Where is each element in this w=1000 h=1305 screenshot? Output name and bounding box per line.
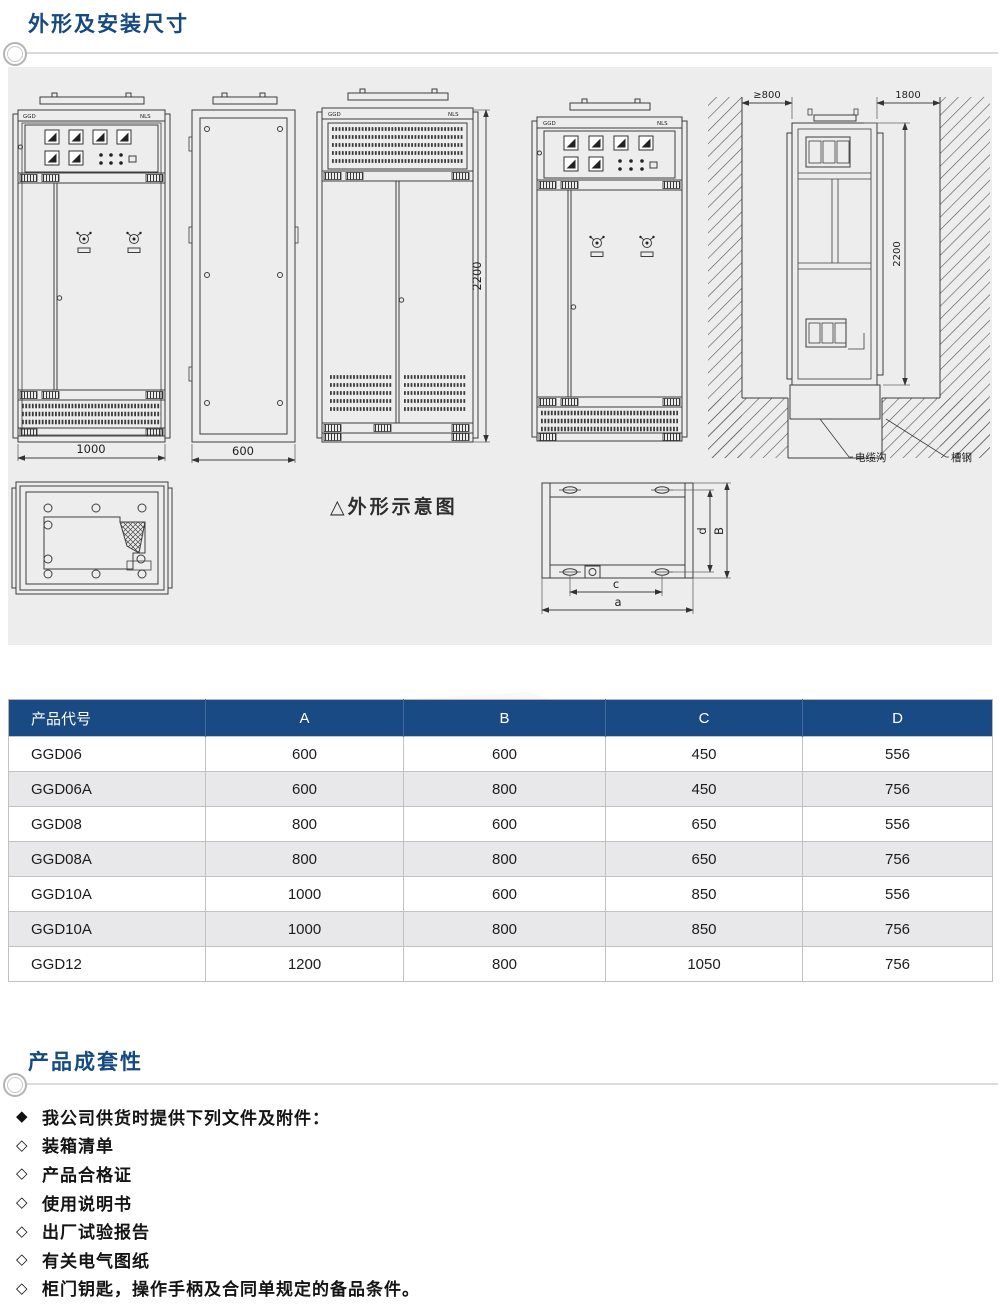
table-row: GGD06A 600 800 450 756 — [9, 772, 993, 807]
table-row: GGD08A 800 800 650 756 — [9, 842, 993, 877]
cell-D: 756 — [803, 772, 993, 807]
cell-B: 800 — [404, 772, 606, 807]
cabinet-label-right: NLS — [657, 121, 668, 127]
cell-C: 850 — [606, 877, 803, 912]
cell-C: 450 — [606, 737, 803, 772]
list-intro-text: 我公司供货时提供下列文件及附件： — [42, 1104, 330, 1129]
section-divider — [14, 52, 998, 54]
cabinet-label-left: GGD — [328, 112, 341, 118]
cell-C: 650 — [606, 807, 803, 842]
drawing-top-view — [12, 482, 172, 594]
cell-product-code: GGD06 — [9, 737, 206, 772]
section-title-completeness: 产品成套性 — [28, 1046, 143, 1076]
col-header-product-code: 产品代号 — [9, 700, 206, 737]
col-header-A: A — [206, 700, 404, 737]
cell-C: 850 — [606, 912, 803, 947]
drawing-installation: ≥800 1800 2200 电缆沟 槽钢 — [708, 90, 990, 464]
hollow-diamond-icon: ◇ — [16, 1136, 42, 1154]
cable-trench-label: 电缆沟 — [855, 451, 887, 464]
cell-A: 800 — [206, 807, 404, 842]
list-item: ◇ 产品合格证 — [16, 1159, 976, 1188]
hollow-diamond-icon: ◇ — [16, 1193, 42, 1211]
table-row: GGD06 600 600 450 556 — [9, 737, 993, 772]
cell-product-code: GGD08A — [9, 842, 206, 877]
filled-diamond-icon: ◆ — [16, 1107, 42, 1125]
dim-B: B — [712, 527, 726, 535]
dim-width-600: 600 — [232, 444, 254, 458]
cell-B: 600 — [404, 807, 606, 842]
drawing-side-view: 600 — [189, 93, 298, 463]
dim-d: d — [695, 527, 709, 534]
cell-A: 800 — [206, 842, 404, 877]
vent-grille — [541, 413, 678, 429]
outline-caption: △外形示意图 — [330, 492, 458, 519]
cell-product-code: GGD10A — [9, 877, 206, 912]
drawing-front-view: GGD NLS — [13, 93, 170, 461]
channel-steel-label: 槽钢 — [951, 451, 972, 464]
hollow-diamond-icon: ◇ — [16, 1250, 42, 1268]
cell-D: 756 — [803, 842, 993, 877]
section-title-dimensions: 外形及安装尺寸 — [28, 8, 189, 38]
dim-c: c — [613, 577, 619, 591]
cell-B: 600 — [404, 877, 606, 912]
cell-B: 800 — [404, 842, 606, 877]
completeness-list: ◆ 我公司供货时提供下列文件及附件： ◇ 装箱清单 ◇ 产品合格证 ◇ 使用说明… — [16, 1102, 976, 1302]
cell-B: 600 — [404, 737, 606, 772]
door-vent-grilles — [330, 377, 466, 409]
list-item: ◇ 装箱清单 — [16, 1131, 976, 1160]
dim-left-clearance: ≥800 — [753, 90, 780, 101]
ring-icon — [3, 42, 27, 66]
list-item-text: 有关电气图纸 — [42, 1247, 150, 1272]
cell-D: 756 — [803, 947, 993, 982]
table-header-row: 产品代号 A B C D — [9, 700, 993, 737]
indicator-lamps — [618, 159, 657, 171]
col-header-D: D — [803, 700, 993, 737]
cell-C: 650 — [606, 842, 803, 877]
indicator-lamps — [99, 153, 136, 165]
list-item: ◇ 出厂试验报告 — [16, 1216, 976, 1245]
dim-width-1000: 1000 — [76, 442, 105, 456]
cell-A: 1000 — [206, 912, 404, 947]
dim-a: a — [614, 595, 621, 609]
cell-C: 450 — [606, 772, 803, 807]
list-item: ◇ 柜门钥匙，操作手柄及合同单规定的备品条件。 — [16, 1274, 976, 1303]
cell-A: 600 — [206, 737, 404, 772]
panel-screws — [205, 127, 283, 406]
cabinet-label-right: NLS — [140, 114, 151, 120]
list-item-text: 柜门钥匙，操作手柄及合同单规定的备品条件。 — [42, 1275, 420, 1300]
list-intro: ◆ 我公司供货时提供下列文件及附件： — [16, 1102, 976, 1131]
cell-D: 556 — [803, 737, 993, 772]
cabinet-label-left: GGD — [23, 114, 36, 120]
cell-A: 1200 — [206, 947, 404, 982]
cell-product-code: GGD12 — [9, 947, 206, 982]
cell-B: 800 — [404, 912, 606, 947]
cell-A: 1000 — [206, 877, 404, 912]
col-header-C: C — [606, 700, 803, 737]
list-item-text: 使用说明书 — [42, 1190, 132, 1215]
ring-icon — [3, 1073, 27, 1097]
drawing-front-view-2: GGD NLS — [532, 99, 687, 441]
hollow-diamond-icon: ◇ — [16, 1164, 42, 1182]
cabinet-label-left: GGD — [543, 121, 556, 127]
dim-height-2200: 2200 — [892, 241, 903, 266]
cell-D: 556 — [803, 807, 993, 842]
cell-D: 756 — [803, 912, 993, 947]
table-row: GGD10A 1000 800 850 756 — [9, 912, 993, 947]
cell-C: 1050 — [606, 947, 803, 982]
list-item: ◇ 使用说明书 — [16, 1188, 976, 1217]
dim-height-2200: 2200 — [470, 261, 484, 290]
cell-product-code: GGD06A — [9, 772, 206, 807]
cell-product-code: GGD08 — [9, 807, 206, 842]
cabinet-label-right: NLS — [448, 112, 459, 118]
table-row: GGD08 800 600 650 556 — [9, 807, 993, 842]
list-item: ◇ 有关电气图纸 — [16, 1245, 976, 1274]
drawings-panel: GGD NLS — [8, 67, 992, 645]
cell-B: 800 — [404, 947, 606, 982]
hollow-diamond-icon: ◇ — [16, 1279, 42, 1297]
list-item-text: 装箱清单 — [42, 1132, 114, 1157]
drawing-base-plan: d B c a — [542, 483, 731, 614]
drawing-rear-view: GGD NLS — [317, 89, 490, 442]
hollow-diamond-icon: ◇ — [16, 1222, 42, 1240]
section-divider — [14, 1083, 998, 1085]
cell-product-code: GGD10A — [9, 912, 206, 947]
dimension-table: 产品代号 A B C D GGD06 600 600 450 556 GGD06… — [8, 699, 993, 982]
top-vent-grille — [332, 129, 463, 161]
list-item-text: 产品合格证 — [42, 1161, 132, 1186]
table-row: GGD10A 1000 600 850 556 — [9, 877, 993, 912]
list-item-text: 出厂试验报告 — [42, 1218, 150, 1243]
table-row: GGD12 1200 800 1050 756 — [9, 947, 993, 982]
col-header-B: B — [404, 700, 606, 737]
vent-grille — [22, 406, 161, 422]
cell-D: 556 — [803, 877, 993, 912]
dim-right-clearance: 1800 — [895, 90, 920, 101]
cell-A: 600 — [206, 772, 404, 807]
outline-drawings: GGD NLS — [8, 67, 992, 645]
